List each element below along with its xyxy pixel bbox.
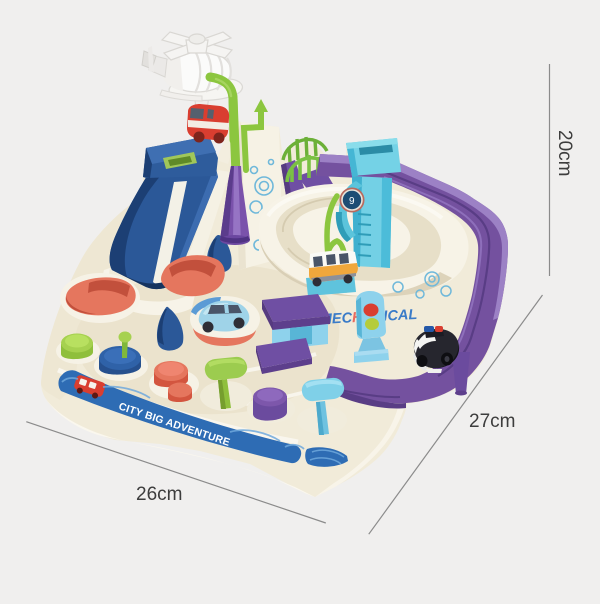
svg-text:9: 9 [349,196,355,207]
svg-text:20cm: 20cm [554,130,575,176]
svg-text:27cm: 27cm [469,411,515,432]
svg-text:26cm: 26cm [136,484,182,505]
